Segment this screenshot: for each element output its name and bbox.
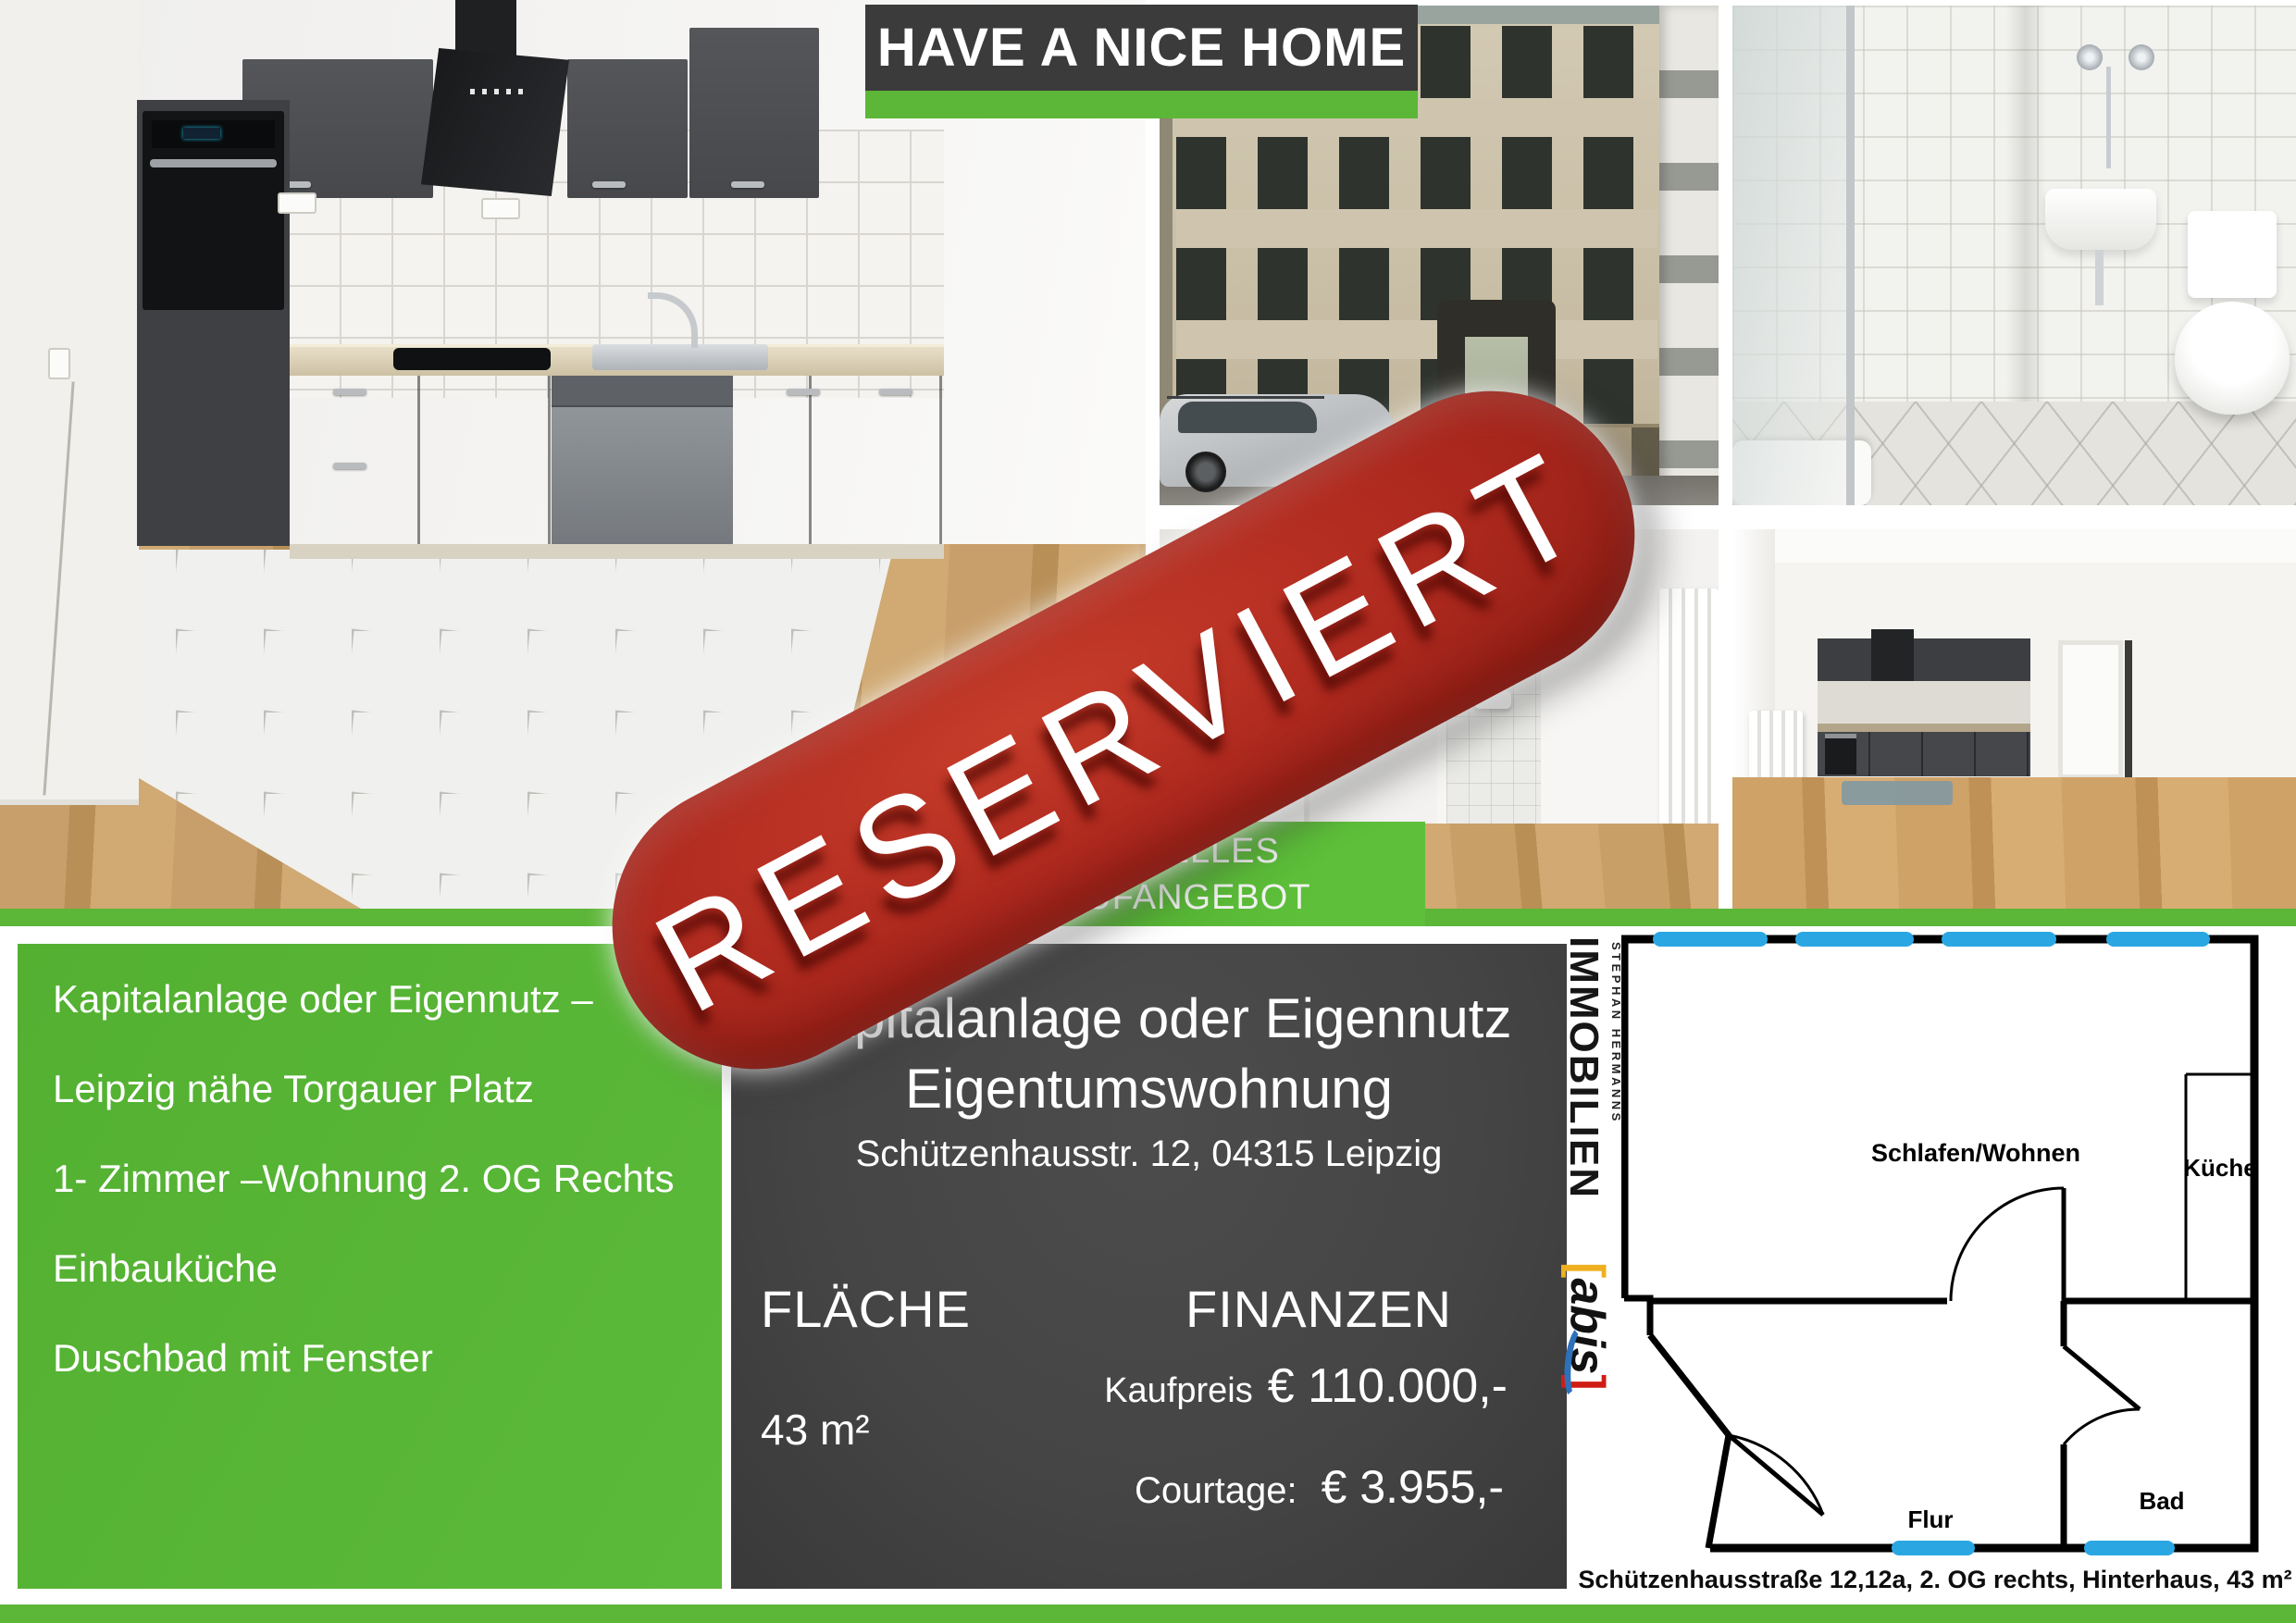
courtage-label: Courtage: [1135, 1470, 1297, 1512]
backsplash-outlet [481, 198, 520, 219]
agency-logo: IMMOBILIEN STEPHAN HERMANNS [1560, 936, 1623, 1251]
living-door-arc [1951, 1188, 2064, 1301]
offer-address: Schützenhausstr. 12, 04315 Leipzig [731, 1134, 1567, 1175]
living-ceiling [1732, 529, 2296, 563]
induction-hob [393, 348, 551, 370]
price-label: Kaufpreis [1104, 1371, 1253, 1411]
living-wood-floor [1732, 777, 2296, 909]
toilet-cistern [2188, 211, 2277, 298]
banner-title: HAVE A NICE HOME [877, 17, 1406, 79]
floorplan-caption: Schützenhausstraße 12,12a, 2. OG rechts,… [1574, 1566, 2296, 1594]
shower-fitting [2128, 44, 2154, 70]
oven-control-panel [152, 120, 275, 148]
feature-item: Leipzig nähe Torgauer Platz [53, 1059, 722, 1149]
cabinet-handle [879, 389, 912, 395]
kitchen-upper-cabinet [567, 59, 688, 198]
kitchen-niche-wall [2186, 1074, 2254, 1298]
finance-heading: FINANZEN [1129, 1279, 1508, 1339]
feature-item: Einbauküche [53, 1239, 722, 1329]
price-value: € 110.000,- [1268, 1358, 1508, 1414]
kitchenette-counter [1818, 724, 2030, 732]
area-value: 43 m² [761, 1405, 870, 1455]
floorplan-outer-walls [1624, 939, 2254, 1548]
adjacent-building [1659, 6, 1719, 505]
banner-dark-box: HAVE A NICE HOME [865, 5, 1418, 91]
oven [143, 111, 284, 310]
feature-item: Kapitalanlage oder Eigennutz – [53, 970, 722, 1059]
courtage-value: € 3.955,- [1322, 1460, 1504, 1514]
cabinet-handle [333, 389, 366, 395]
offer-panel: Kapitalanlage oder Eigennutz Eigentumswo… [731, 944, 1567, 1589]
living-door [2058, 640, 2123, 779]
living-floor-mat [1842, 781, 1953, 805]
toilet-bowl [2175, 302, 2290, 415]
oven-display [183, 128, 220, 139]
kitchen-wall-outlet [48, 348, 70, 379]
kitchenette-backsplash [1818, 681, 2030, 725]
kitchenette-oven [1825, 734, 1856, 774]
abis-bracket-left: [ [1560, 1262, 1614, 1278]
cabinet-handle [592, 181, 626, 188]
car-windows [1178, 402, 1317, 433]
washbasin-pipe [2095, 250, 2104, 305]
entrance-door-leaf [1729, 1435, 1823, 1515]
courtage-row: Courtage: € 3.955,- [1135, 1460, 1504, 1514]
bath-door-arc [2064, 1409, 2140, 1444]
dishwasher [552, 376, 733, 544]
cabinet-handle [731, 181, 764, 188]
area-heading: FLÄCHE [761, 1279, 971, 1339]
floorplan-section: IMMOBILIEN STEPHAN HERMANNS [abis] Schla… [1567, 926, 2296, 1604]
oven-column [137, 100, 290, 546]
floorplan-wall-step [1624, 1298, 1650, 1335]
hallway-radiator [1659, 588, 1719, 846]
room-label-kitchen: Küche [2183, 1154, 2256, 1182]
backsplash-outlet [278, 192, 316, 214]
shower-glass-panel [1732, 6, 1855, 505]
oven-handle [150, 159, 277, 167]
feature-item: Duschbad mit Fenster [53, 1329, 722, 1419]
kitchen-plinth [290, 544, 944, 559]
room-label-living: Schlafen/Wohnen [1871, 1139, 2080, 1167]
cooker-hood [421, 48, 569, 196]
car-roof-rail [1167, 396, 1324, 399]
cooker-hood-leds [470, 89, 526, 94]
kitchen-upper-cabinet [689, 28, 819, 198]
offer-title-line2: Eigentumswohnung [731, 1057, 1567, 1121]
footer-green-bar [0, 1604, 2296, 1623]
top-banner: HAVE A NICE HOME [865, 5, 1418, 118]
car-wheel [1185, 452, 1226, 492]
banner-green-underline [865, 91, 1418, 118]
cabinet-handle [787, 389, 820, 395]
floorplan-entrance-wall [1650, 1335, 1729, 1548]
floorplan-drawing: Schlafen/Wohnen Küche Flur Bad [1621, 928, 2277, 1565]
price-row: Kaufpreis € 110.000,- [1104, 1358, 1508, 1414]
room-label-bath: Bad [2139, 1487, 2184, 1515]
kitchen-sink [592, 344, 768, 370]
bath-door-leaf [2064, 1346, 2140, 1409]
room-label-hall: Flur [1907, 1505, 1953, 1533]
kitchenette-wall-units [1818, 638, 2030, 681]
shower-fitting [2077, 44, 2103, 70]
features-panel: Kapitalanlage oder Eigennutz – Leipzig n… [18, 944, 722, 1589]
washbasin [2045, 189, 2156, 250]
shower-pipe [2106, 67, 2111, 168]
living-door-opening [2125, 640, 2132, 779]
agency-logo-immobilien: IMMOBILIEN [1560, 936, 1607, 1251]
photo-bathroom [1732, 6, 2296, 505]
photo-living-room [1732, 529, 2296, 909]
cabinet-handle [333, 463, 366, 469]
feature-item: 1- Zimmer –Wohnung 2. OG Rechts [53, 1149, 722, 1239]
dishwasher-controls [552, 376, 733, 407]
